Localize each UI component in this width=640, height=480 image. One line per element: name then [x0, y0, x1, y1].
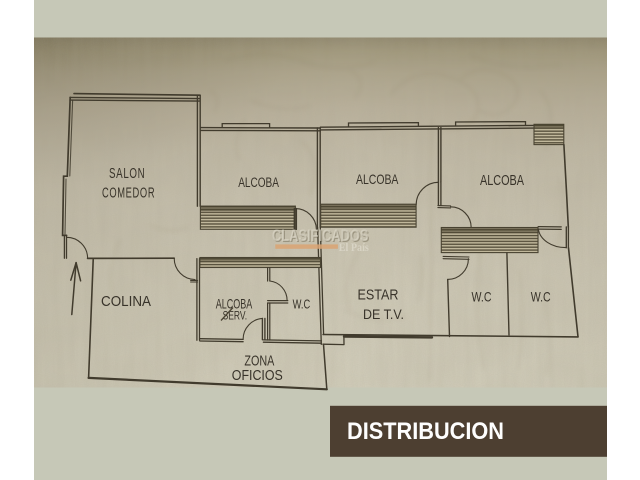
svg-text:W.C: W.C	[472, 289, 492, 305]
svg-text:DISTRIBUCION: DISTRIBUCION	[347, 418, 504, 445]
svg-text:ALCOBA: ALCOBA	[238, 175, 279, 191]
svg-text:COLINA: COLINA	[101, 294, 151, 310]
svg-text:W.C: W.C	[531, 289, 551, 305]
svg-text:W.C: W.C	[293, 297, 311, 311]
svg-text:El País: El País	[339, 242, 369, 254]
svg-text:ZONA: ZONA	[244, 353, 274, 369]
svg-text:DE T.V.: DE T.V.	[363, 306, 404, 322]
svg-text:ESTAR: ESTAR	[358, 286, 399, 303]
svg-text:SALON: SALON	[109, 166, 145, 182]
svg-text:OFICIOS: OFICIOS	[232, 368, 283, 384]
svg-text:ALCOBA: ALCOBA	[356, 172, 399, 187]
svg-text:COMEDOR: COMEDOR	[102, 186, 155, 202]
svg-text:ALCOBA: ALCOBA	[480, 173, 524, 189]
